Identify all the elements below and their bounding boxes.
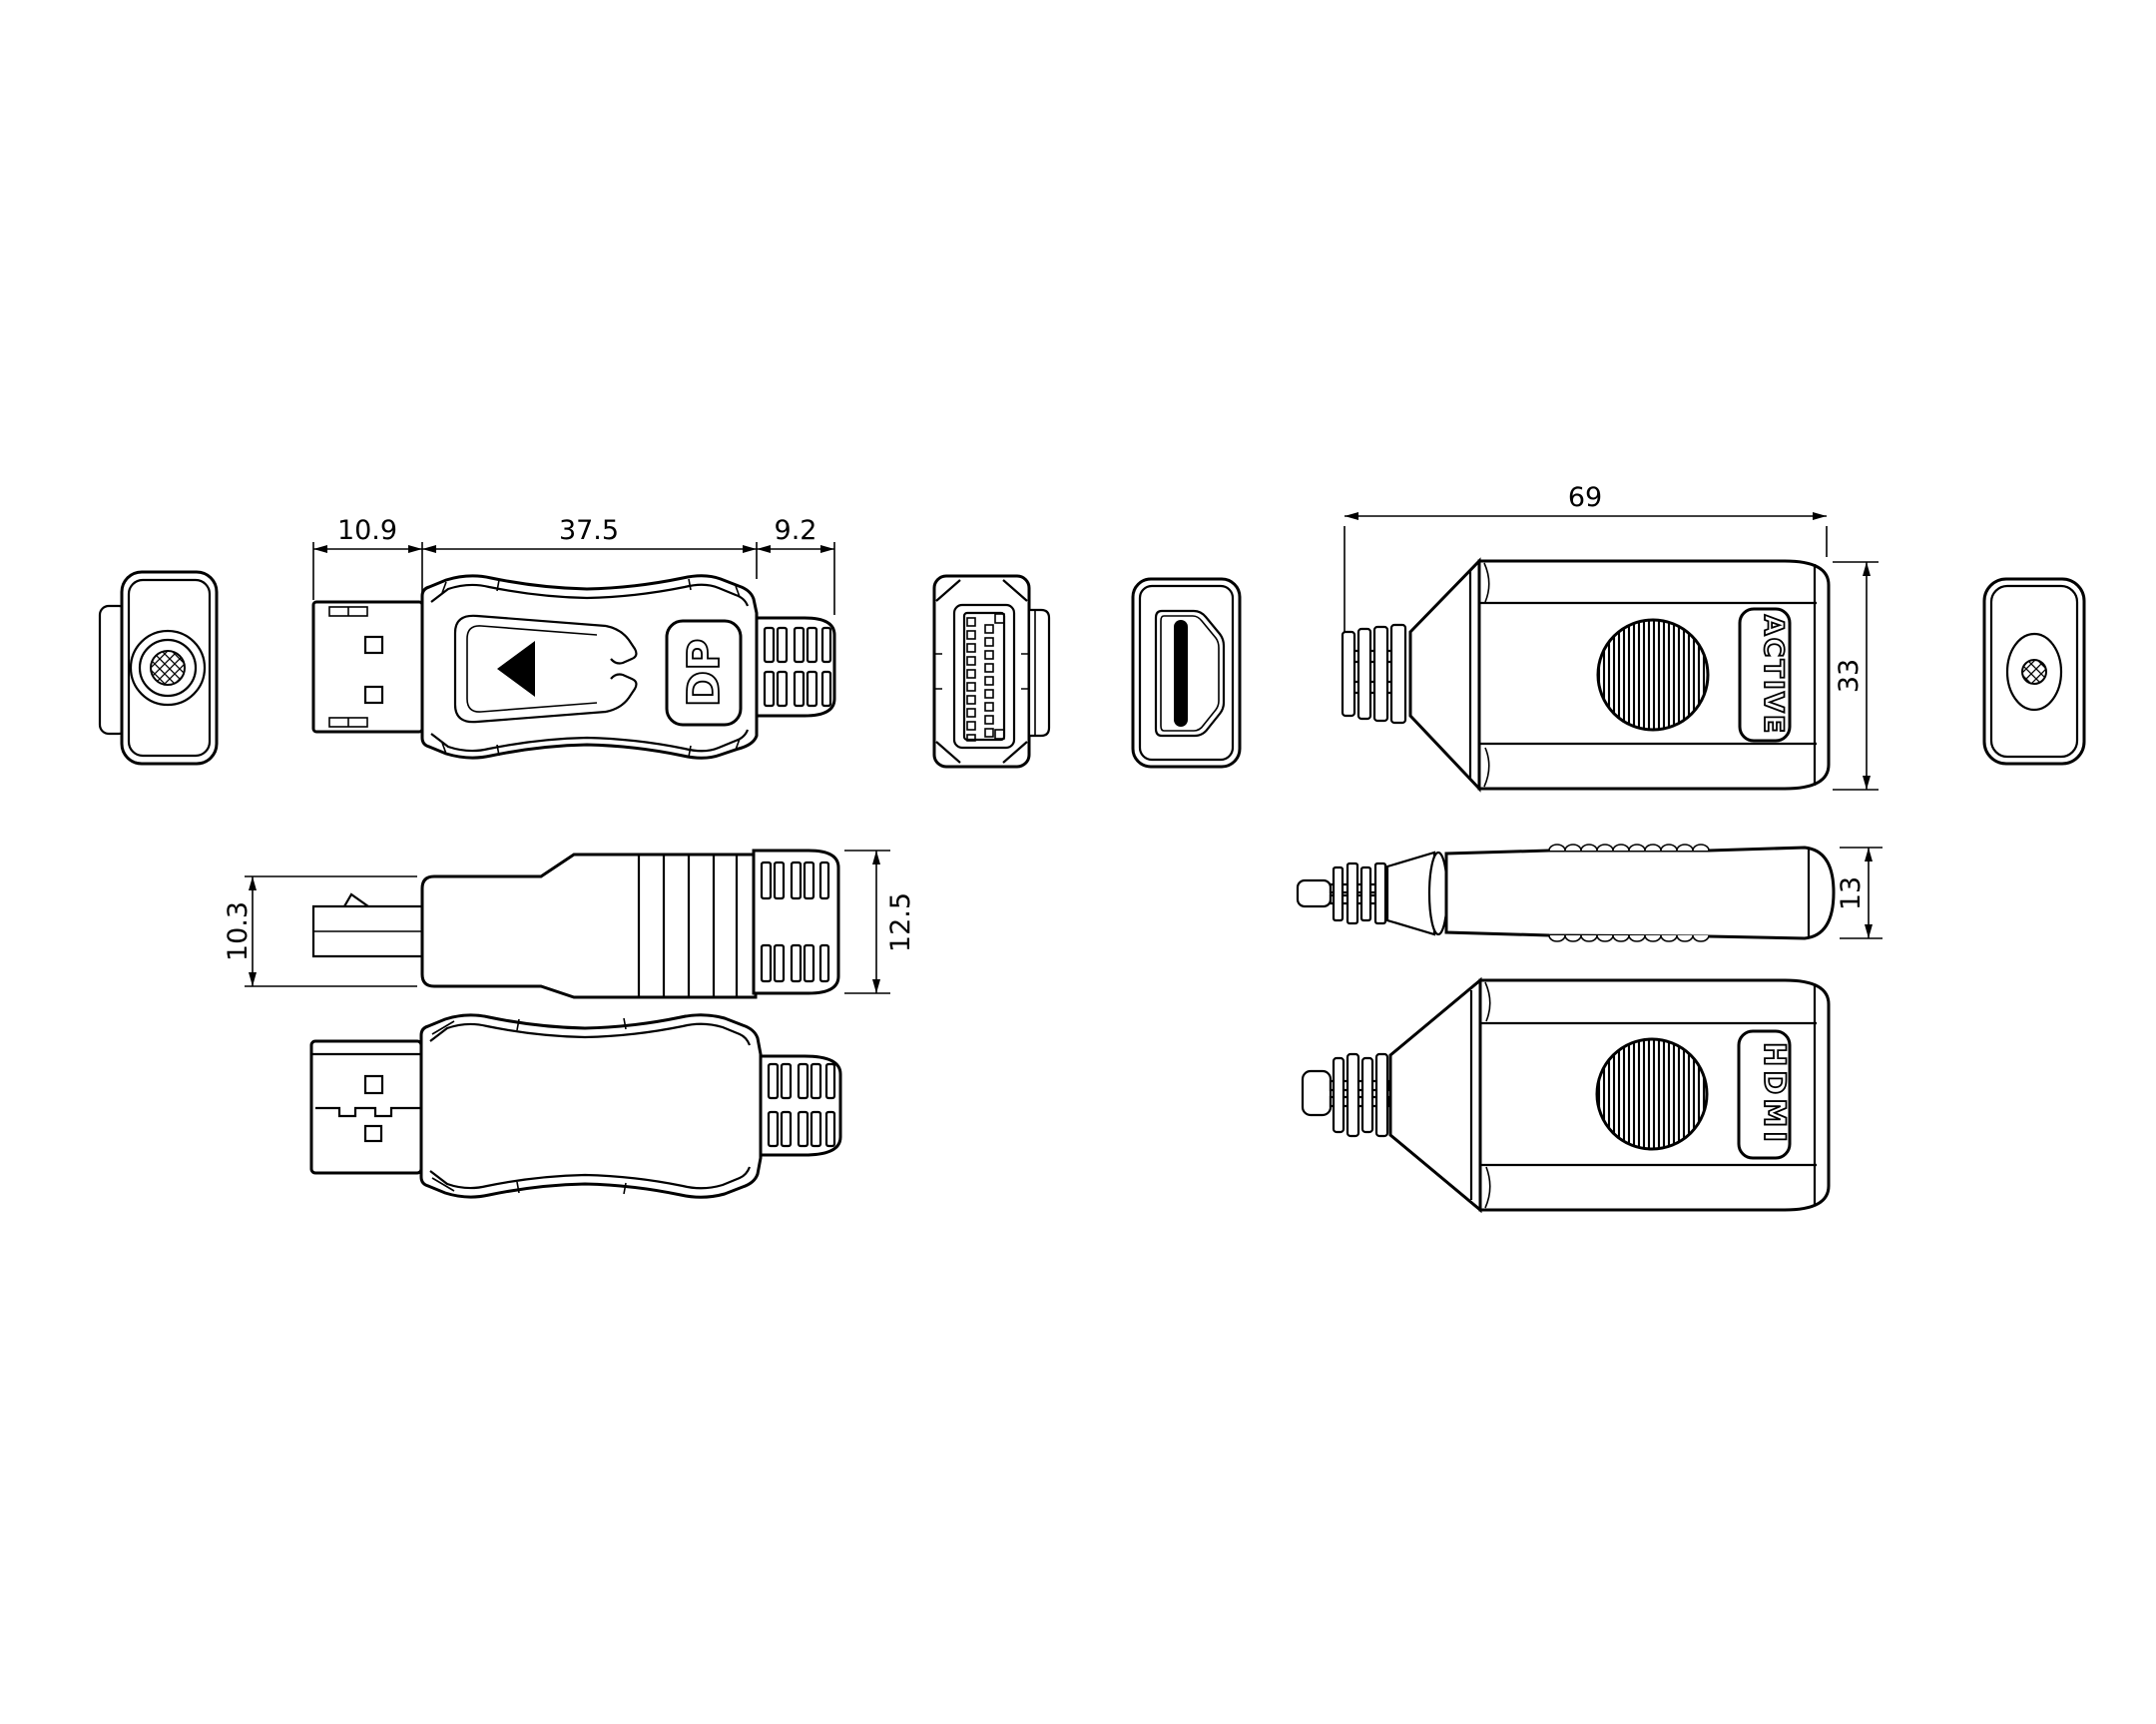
arrowhead	[820, 545, 834, 553]
knurled-thumbwheel-icon	[1597, 1039, 1707, 1149]
dp-logo-icon: DP	[679, 639, 730, 708]
arrowhead	[743, 545, 757, 553]
active-label: ACTIVE	[1758, 615, 1789, 736]
technical-drawing-svg: 10.9 37.5 9.2 DP	[0, 0, 2156, 1724]
boot-side	[754, 851, 838, 993]
arrowhead	[249, 876, 257, 890]
arrowhead	[1865, 848, 1873, 862]
arrowhead	[1865, 924, 1873, 938]
grip-scallops-bottom	[1549, 935, 1709, 941]
cable-strain-ribs	[1331, 863, 1387, 923]
dp-plug-front-view	[934, 576, 1049, 767]
taper-cone	[1390, 980, 1480, 1210]
arrowhead	[1863, 562, 1871, 576]
extender-side-body	[1446, 848, 1834, 938]
latch-bump	[344, 894, 368, 906]
hdmi-port-opening	[1156, 611, 1224, 736]
grip-scallops-top	[1549, 845, 1709, 851]
dp-endcap-rear-view	[100, 572, 217, 764]
dp-plug-top-view: DP	[313, 576, 834, 759]
hdmi-label: HDMI	[1758, 1042, 1792, 1146]
dp-plug-shell	[313, 602, 422, 732]
dp-plug-bottom-view	[311, 1015, 840, 1198]
extender-height-dimension: 33	[1833, 562, 1879, 790]
arrowhead	[249, 972, 257, 986]
crosshatch-boss-icon	[151, 651, 185, 685]
taper-cone	[1410, 561, 1479, 789]
extender-bottom-view: HDMI	[1303, 980, 1829, 1210]
hdmi-contact-blade	[1174, 620, 1188, 727]
arrowhead	[757, 545, 771, 553]
dim-plug-length: 10.9	[337, 515, 397, 546]
cable-tip	[1303, 1071, 1331, 1115]
dim-boot-height: 12.5	[885, 892, 916, 952]
dim-extender-thickness: 13	[1836, 876, 1867, 910]
hdmi-female-front-view	[1133, 579, 1240, 767]
dim-body-length: 37.5	[559, 515, 619, 546]
knurled-thumbwheel-icon	[1598, 620, 1708, 730]
dim-boot-length: 9.2	[775, 515, 817, 546]
arrowhead	[872, 851, 880, 864]
arrowhead	[1863, 776, 1871, 790]
extender-top-view: ACTIVE	[1343, 561, 1829, 789]
crosshatch-boss-icon	[2022, 660, 2046, 684]
dp-plug-side-view: 10.3 12.5	[223, 851, 916, 997]
boot-bottom	[761, 1056, 840, 1155]
dim-extender-height: 33	[1834, 659, 1865, 693]
dim-plug-height: 10.3	[223, 901, 254, 961]
arrowhead	[422, 545, 436, 553]
extender-endcap-front-view	[1984, 579, 2084, 764]
extender-side-view: 13	[1298, 845, 1883, 941]
body-bottom-outline	[421, 1015, 761, 1198]
dim-extender-length: 69	[1568, 482, 1602, 513]
cable-strain-ribs	[1331, 1054, 1388, 1136]
arrowhead	[1345, 512, 1358, 520]
cable-tip	[1298, 880, 1331, 906]
arrowhead	[408, 545, 422, 553]
arrowhead	[313, 545, 327, 553]
arrowhead	[1813, 512, 1827, 520]
drawing-canvas: 10.9 37.5 9.2 DP	[0, 0, 2156, 1724]
side-tab	[1029, 610, 1049, 736]
taper-side	[1387, 853, 1434, 934]
cable-strain-ribs	[1343, 625, 1405, 723]
arrowhead	[872, 979, 880, 993]
